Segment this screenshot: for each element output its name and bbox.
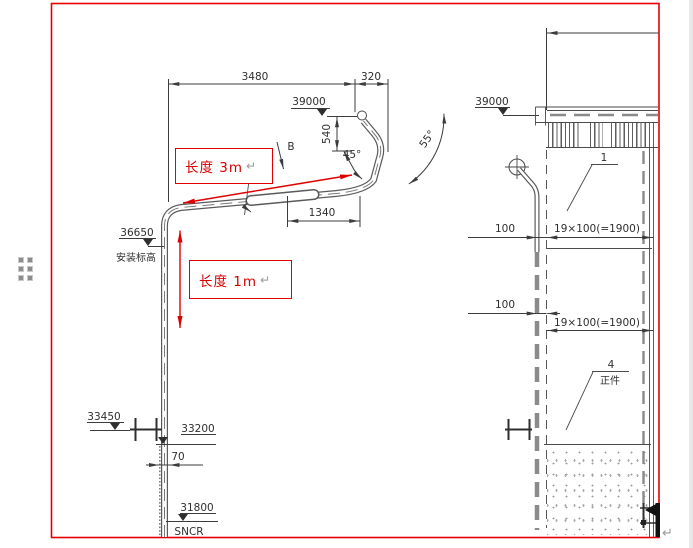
dim-3480-label: 3480 [242, 71, 269, 83]
angle-45-label: 45° [343, 149, 362, 161]
elevation-value: 39000 [292, 96, 325, 108]
linebreak-mark: ↵ [260, 273, 270, 287]
elevation-36650: 36650 安装标高 [116, 227, 164, 264]
elevation-value: 33200 [181, 423, 214, 435]
angle-55-label: 55° [417, 128, 438, 150]
anchor-dot [19, 276, 23, 280]
beam-symbol-right [505, 419, 532, 440]
dim-540-label: 540 [321, 124, 333, 144]
elevation-39000-front: 39000 [291, 96, 357, 117]
dim-row-lower: 100 19×100(=1900) [468, 299, 653, 331]
elevation-value: 33450 [87, 411, 120, 423]
length-3m-textbox[interactable]: 长度 3m ↵ [175, 148, 273, 184]
elevation-33450: 33450 [87, 411, 130, 431]
part-label-1: 1 [567, 152, 618, 211]
elevation-value: 31800 [180, 502, 213, 514]
length-3m-text: 长度 3m [185, 156, 243, 176]
section-b-label: B [287, 141, 294, 153]
part-number: 1 [601, 152, 608, 164]
angle-55: 55° [409, 114, 444, 184]
length-1m-textbox[interactable]: 长度 1m ↵ [189, 260, 292, 299]
dim-1340-label: 1340 [309, 207, 336, 219]
part-number: 4 [608, 359, 615, 371]
dim-100-label: 100 [495, 299, 515, 311]
part-label-4: 4 正件 [566, 359, 629, 430]
hanger-pin-circle [358, 111, 367, 120]
wall-lines [547, 147, 654, 537]
elevation-31800: 31800 SNCR [166, 502, 218, 538]
dim-top-clipped [547, 28, 660, 110]
anchor-dot [19, 258, 23, 262]
part-caption: 正件 [600, 375, 620, 387]
anchor-dot [28, 258, 32, 262]
angle-45: 45° [343, 149, 362, 179]
side-view: 39000 [468, 28, 660, 537]
elevation-39000-side: 39000 [475, 96, 539, 116]
object-anchor-handle[interactable] [19, 258, 32, 280]
dim-70: 70 [146, 451, 203, 465]
dim-70-label: 70 [171, 451, 184, 463]
anchor-dot [28, 276, 32, 280]
elevation-value: 39000 [475, 96, 508, 108]
dim-320-label: 320 [361, 71, 381, 83]
document-canvas: 3480 320 39000 [0, 0, 693, 548]
beam-symbol-left [130, 418, 162, 441]
dim-run-label: 19×100(=1900) [554, 317, 640, 329]
length-1m-text: 长度 1m [199, 270, 257, 290]
cad-drawing[interactable]: 3480 320 39000 [0, 0, 693, 548]
front-view: 3480 320 39000 [87, 71, 444, 538]
elevation-caption: 安装标高 [116, 251, 156, 264]
side-pipe [519, 169, 537, 530]
grating-band [536, 107, 659, 148]
anchor-dot [28, 267, 32, 271]
corner-fixture [640, 503, 660, 537]
dim-row-upper: 100 19×100(=1900) [468, 223, 653, 249]
sncr-label: SNCR [174, 526, 203, 538]
dim-run-label: 19×100(=1900) [554, 223, 640, 235]
paragraph-return-mark: ↵ [662, 526, 673, 541]
linebreak-mark: ↵ [246, 159, 256, 173]
anchor-dot [19, 267, 23, 271]
dim-100-label: 100 [495, 223, 515, 235]
dim-540: 540 [321, 117, 352, 152]
elevation-value: 36650 [120, 227, 153, 239]
